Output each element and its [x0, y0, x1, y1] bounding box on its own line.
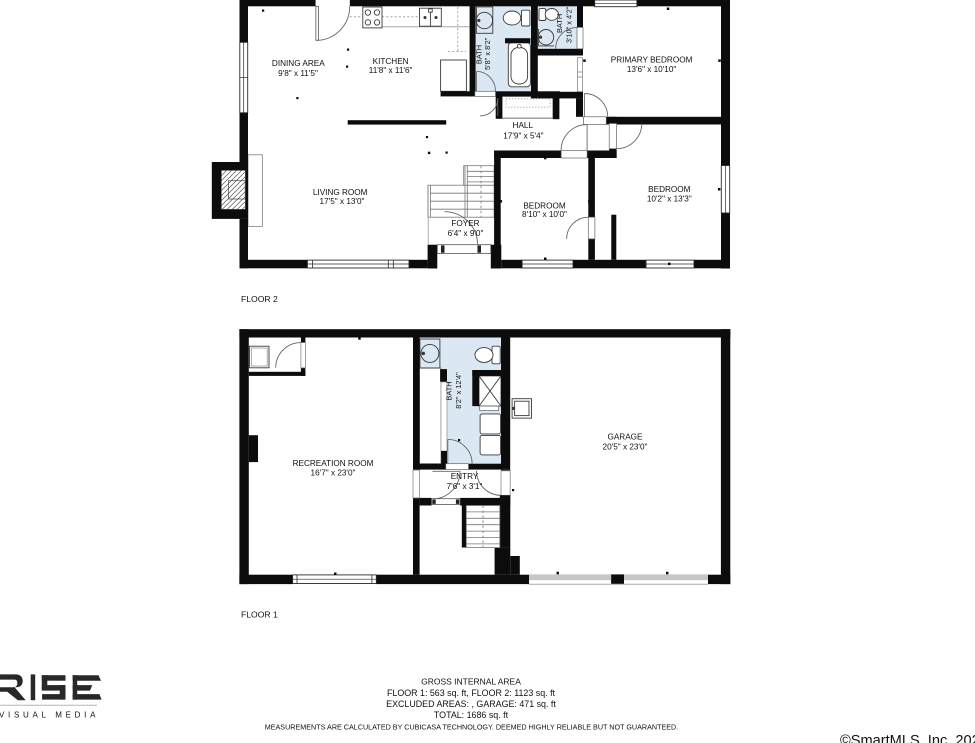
svg-text:16'7" x 23'0": 16'7" x 23'0" — [311, 468, 356, 477]
svg-text:KITCHEN: KITCHEN — [373, 57, 409, 66]
svg-text:LIVING ROOM: LIVING ROOM — [313, 188, 368, 197]
svg-text:RECREATION ROOM: RECREATION ROOM — [293, 459, 374, 468]
svg-text:17'9" x 5'4": 17'9" x 5'4" — [503, 131, 543, 140]
svg-text:MEASUREMENTS ARE CALCULATED BY: MEASUREMENTS ARE CALCULATED BY CUBICASA … — [265, 722, 679, 731]
svg-text:ENTRY: ENTRY — [451, 472, 479, 481]
svg-text:VISUAL MEDIA: VISUAL MEDIA — [0, 710, 99, 719]
svg-text:BEDROOM: BEDROOM — [523, 201, 565, 210]
svg-text:FLOOR 2: FLOOR 2 — [241, 294, 278, 304]
svg-text:13'6" x 10'10": 13'6" x 10'10" — [627, 65, 677, 74]
svg-text:9'8" x 11'5": 9'8" x 11'5" — [278, 69, 318, 78]
svg-text:HALL: HALL — [513, 121, 534, 130]
svg-text:7'6" x 3'1": 7'6" x 3'1" — [447, 482, 483, 491]
svg-text:11'8" x 11'6": 11'8" x 11'6" — [369, 66, 413, 75]
svg-text:BEDROOM: BEDROOM — [648, 185, 690, 194]
svg-text:BATH: BATH — [445, 381, 454, 400]
svg-text:BATH: BATH — [555, 14, 564, 33]
svg-text:20'5" x 23'0": 20'5" x 23'0" — [603, 442, 648, 451]
svg-text:8'2" x 12'4": 8'2" x 12'4" — [454, 372, 463, 409]
svg-text:PRIMARY BEDROOM: PRIMARY BEDROOM — [611, 56, 693, 65]
svg-text:3'10" x 4'2": 3'10" x 4'2" — [564, 6, 573, 43]
svg-text:GARAGE: GARAGE — [607, 433, 643, 442]
svg-text:EXCLUDED AREAS: , GARAGE: 471: EXCLUDED AREAS: , GARAGE: 471 sq. ft — [386, 699, 556, 709]
svg-text:FLOOR 1: 563 sq. ft, FLOOR 2:: FLOOR 1: 563 sq. ft, FLOOR 2: 1123 sq. f… — [387, 688, 556, 698]
svg-text:10'2" x 13'3": 10'2" x 13'3" — [647, 194, 692, 203]
svg-text:GROSS INTERNAL AREA: GROSS INTERNAL AREA — [421, 677, 521, 687]
svg-text:FLOOR 1: FLOOR 1 — [241, 610, 278, 620]
svg-text:8'10" x 10'0": 8'10" x 10'0" — [522, 210, 567, 219]
svg-text:TOTAL: 1686 sq. ft: TOTAL: 1686 sq. ft — [434, 710, 509, 720]
svg-text:5'8" x 8'2": 5'8" x 8'2" — [483, 37, 492, 70]
svg-text:DINING AREA: DINING AREA — [272, 59, 325, 68]
svg-text:17'5" x 13'0": 17'5" x 13'0" — [320, 197, 365, 206]
svg-text:6'4" x 9'0": 6'4" x 9'0" — [448, 229, 484, 238]
svg-text:FOYER: FOYER — [451, 219, 479, 228]
svg-text:©SmartMLS, Inc. 2022: ©SmartMLS, Inc. 2022 — [840, 733, 975, 743]
